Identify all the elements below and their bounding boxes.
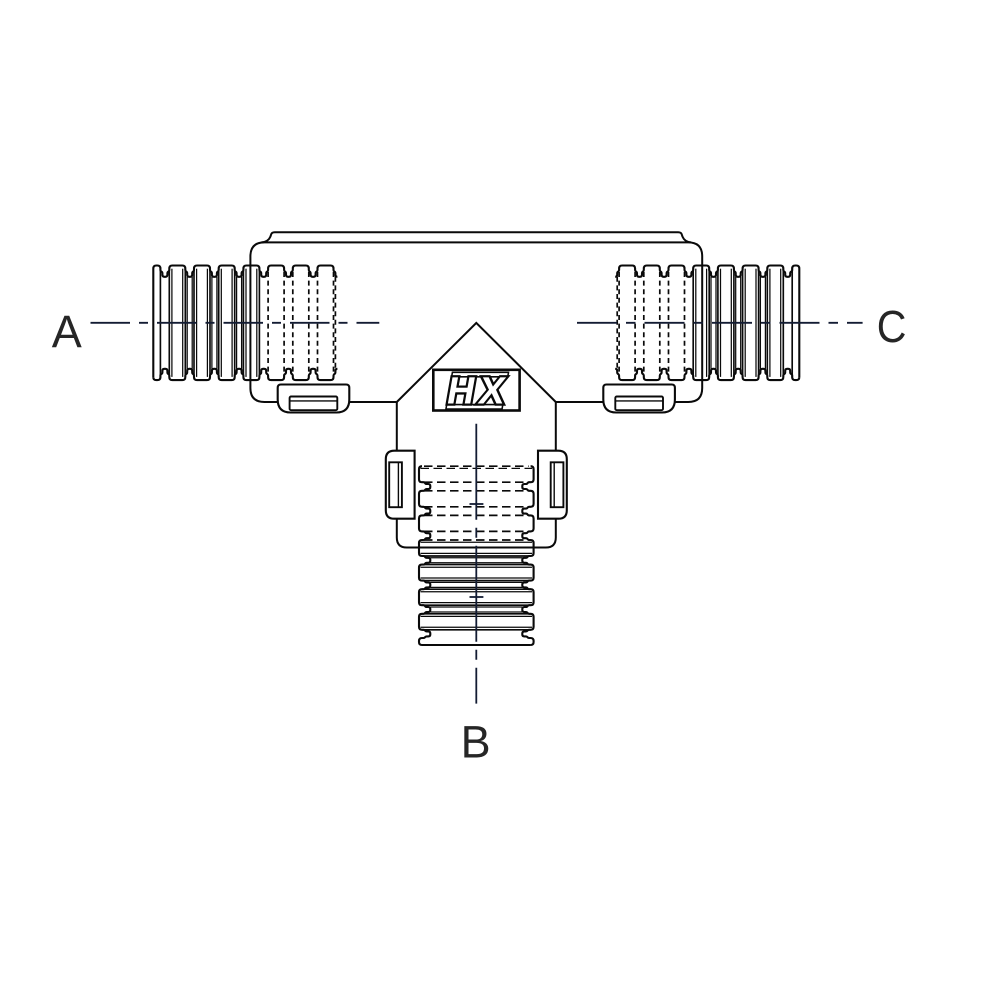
svg-text:C: C [877,302,907,352]
svg-text:B: B [461,716,491,767]
svg-text:A: A [52,306,82,357]
svg-text:HX: HX [444,370,513,413]
